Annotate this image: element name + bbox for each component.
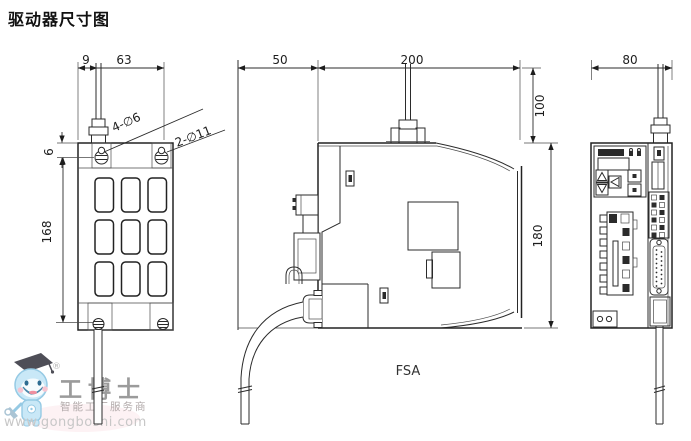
up-button	[596, 170, 608, 182]
mounting-screw	[155, 147, 168, 164]
indicator-icon	[637, 149, 641, 157]
indicator-icon	[629, 149, 633, 157]
dimension-drawing: ® 工博士 智能工厂服务商 www.gongboshi.com	[0, 0, 691, 441]
left-view-top-cable	[89, 63, 108, 143]
dim-hole-pitch: 168	[40, 221, 54, 244]
dim-top-clearance: 100	[533, 95, 547, 118]
nameplate	[408, 202, 458, 250]
label-large-holes: 2-∅11	[173, 123, 213, 150]
left-button	[609, 176, 621, 188]
dim-depth: 200	[401, 53, 424, 67]
right-view: 80	[591, 53, 672, 424]
operator-panel	[594, 146, 646, 197]
terminal-block	[600, 212, 637, 295]
dim-height: 180	[531, 225, 545, 248]
drive-dimension-page: 驱动器尺寸图	[0, 0, 691, 441]
middle-view-top-cable	[386, 64, 430, 143]
dim-hole-edge: 6	[42, 148, 56, 156]
frame-size-label: FSA	[396, 364, 421, 379]
mounting-screw	[95, 147, 108, 164]
vent-slots	[95, 178, 167, 296]
watermark-website: www.gongboshi.com	[4, 415, 147, 430]
down-button	[596, 183, 608, 195]
label-small-holes: 4-∅6	[110, 110, 143, 135]
dim-width: 80	[622, 53, 637, 67]
cable-housing	[650, 297, 670, 326]
side-port	[432, 252, 460, 288]
watermark-tagline: 智能工厂服务商	[60, 400, 148, 413]
display-window	[598, 158, 629, 170]
middle-view: 50 200 100 180 FSA	[238, 53, 558, 424]
bottom-screw	[93, 319, 104, 330]
mode-button	[628, 170, 641, 182]
watermark: ® 工博士 智能工厂服务商 www.gongboshi.com	[4, 353, 148, 432]
status-display-bar	[598, 149, 624, 156]
middle-view-dimensions: 50 200 100 180	[238, 53, 558, 328]
left-view-bottom-cable	[92, 330, 104, 424]
left-view-dimensions: 9 63 6 168 4-∅6 2-∅11	[40, 53, 225, 323]
connector-column	[649, 147, 670, 326]
middle-view-bottom-cable	[238, 302, 303, 424]
dim-width: 63	[116, 53, 131, 67]
right-view-top-cable	[651, 64, 670, 143]
middle-view-body	[318, 143, 522, 328]
bottom-terminal-box	[593, 311, 617, 327]
set-button	[628, 184, 641, 196]
registered-mark: ®	[52, 362, 61, 372]
left-view: 9 63 6 168 4-∅6 2-∅11	[40, 53, 225, 424]
left-view-body	[78, 143, 173, 330]
dim-front-clearance: 50	[272, 53, 287, 67]
right-view-bottom-cable	[654, 326, 665, 424]
bottom-screw	[158, 319, 169, 330]
dsub-connector	[650, 239, 668, 295]
dim-cable-offset: 9	[82, 53, 90, 67]
